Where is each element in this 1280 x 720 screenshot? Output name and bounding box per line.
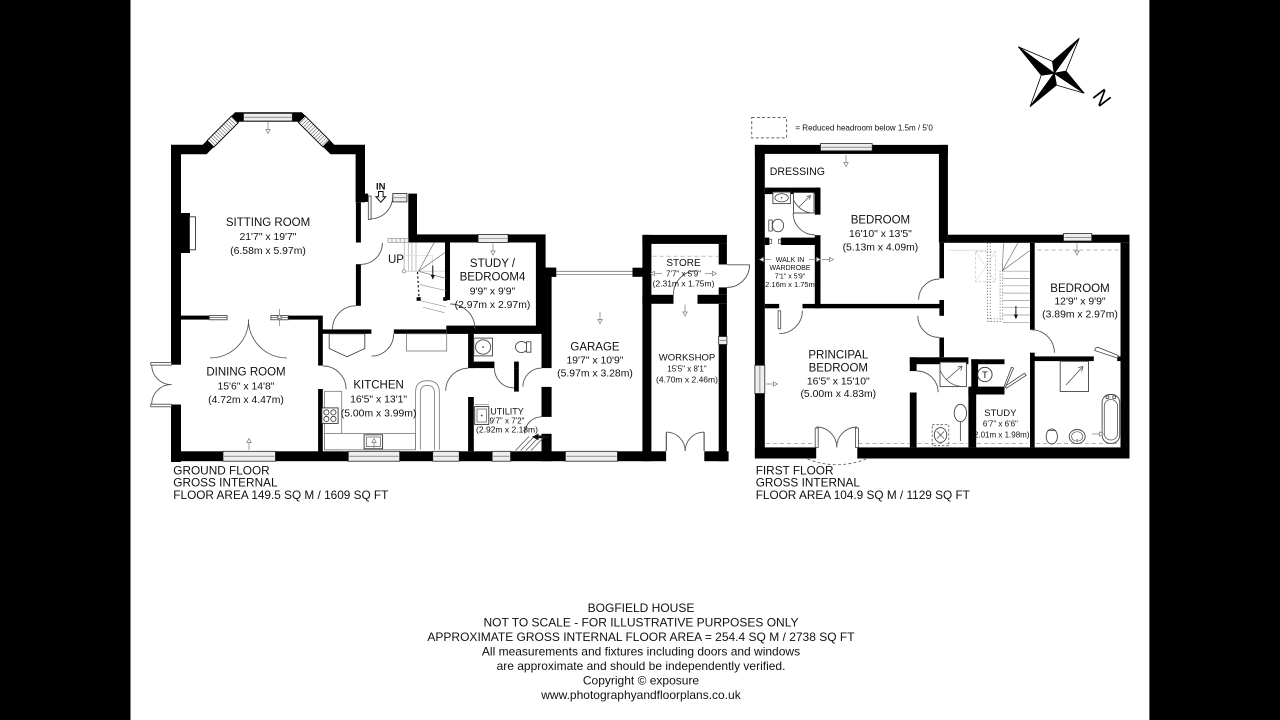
svg-text:(2.31m x 1.75m): (2.31m x 1.75m) [653,278,715,288]
svg-text:DRESSING: DRESSING [770,166,825,178]
svg-text:(4.70m x 2.46m): (4.70m x 2.46m) [656,374,718,384]
svg-text:(2.16m x 1.75m): (2.16m x 1.75m) [763,280,818,289]
svg-text:GARAGE: GARAGE [570,342,620,354]
svg-text:(5.97m x 3.28m): (5.97m x 3.28m) [557,369,633,380]
svg-text:(5.00m x 4.83m): (5.00m x 4.83m) [800,389,876,400]
svg-text:Copyright © exposure: Copyright © exposure [583,674,700,688]
svg-text:IN: IN [376,182,386,193]
svg-text:21'7" x 19'7": 21'7" x 19'7" [240,232,297,243]
svg-text:(3.89m x 2.97m): (3.89m x 2.97m) [1042,309,1118,320]
svg-text:12'9" x 9'9": 12'9" x 9'9" [1054,297,1106,308]
svg-text:BEDROOM: BEDROOM [851,214,910,226]
svg-text:WARDROBE: WARDROBE [770,265,811,272]
svg-text:(6.58m x 5.97m): (6.58m x 5.97m) [230,246,306,257]
svg-text:UP: UP [388,254,404,266]
svg-text:(2.97m x 2.97m): (2.97m x 2.97m) [455,300,531,311]
svg-text:All measurements and fixtures: All measurements and fixtures including … [482,645,800,659]
svg-text:UTILITY: UTILITY [490,407,524,417]
svg-text:WORKSHOP: WORKSHOP [659,352,715,363]
svg-text:KITCHEN: KITCHEN [353,380,403,392]
svg-text:SITTING ROOM: SITTING ROOM [226,217,310,229]
svg-text:15'6" x 14'8": 15'6" x 14'8" [218,381,275,392]
svg-text:STORE: STORE [666,258,701,269]
svg-text:7'7" x 5'9": 7'7" x 5'9" [666,269,701,278]
svg-text:(5.00m x 3.99m): (5.00m x 3.99m) [341,408,417,419]
svg-text:9'9" x 9'9": 9'9" x 9'9" [470,286,516,297]
svg-text:16'5" x 13'1": 16'5" x 13'1" [350,394,407,405]
svg-text:T: T [982,370,988,381]
svg-text:NOT TO SCALE - FOR ILLUSTRATIV: NOT TO SCALE - FOR ILLUSTRATIVE PURPOSES… [484,616,799,630]
svg-text:FLOOR AREA 149.5 SQ M / 1609 S: FLOOR AREA 149.5 SQ M / 1609 SQ FT [173,488,388,502]
svg-text:www.photographyandfloorplans.c: www.photographyandfloorplans.co.uk [540,688,741,702]
svg-text:PRINCIPAL: PRINCIPAL [808,349,868,361]
svg-text:BEDROOM: BEDROOM [809,363,868,375]
svg-text:6'7" x 6'6": 6'7" x 6'6" [983,420,1018,429]
svg-text:DINING ROOM: DINING ROOM [206,366,285,378]
svg-text:(2.01m x 1.98m): (2.01m x 1.98m) [971,430,1030,439]
svg-text:BEDROOM4: BEDROOM4 [460,272,526,284]
svg-text:16'10" x 13'5": 16'10" x 13'5" [849,229,912,240]
svg-text:16'5" x 15'10": 16'5" x 15'10" [807,376,870,387]
svg-text:FLOOR AREA 104.9 SQ M / 1129 S: FLOOR AREA 104.9 SQ M / 1129 SQ FT [756,488,970,502]
svg-text:(4.72m x 4.47m): (4.72m x 4.47m) [208,395,284,406]
svg-text:(2.92m x 2.18m): (2.92m x 2.18m) [476,425,538,435]
svg-text:BEDROOM: BEDROOM [1050,283,1109,295]
svg-text:19'7" x 10'9": 19'7" x 10'9" [567,356,624,367]
svg-text:= Reduced headroom below 1.5m: = Reduced headroom below 1.5m / 5'0 [795,124,933,133]
svg-text:STUDY /: STUDY / [470,258,516,270]
svg-text:are approximate and should be: are approximate and should be independen… [497,659,786,673]
svg-text:BOGFIELD HOUSE: BOGFIELD HOUSE [588,601,695,615]
svg-text:(5.13m x 4.09m): (5.13m x 4.09m) [843,243,919,254]
svg-text:15'5" x 8'1": 15'5" x 8'1" [667,364,707,373]
svg-text:APPROXIMATE GROSS INTERNAL FLO: APPROXIMATE GROSS INTERNAL FLOOR AREA = … [427,630,855,644]
svg-text:WALK IN: WALK IN [776,257,805,264]
svg-text:STUDY: STUDY [984,408,1017,419]
